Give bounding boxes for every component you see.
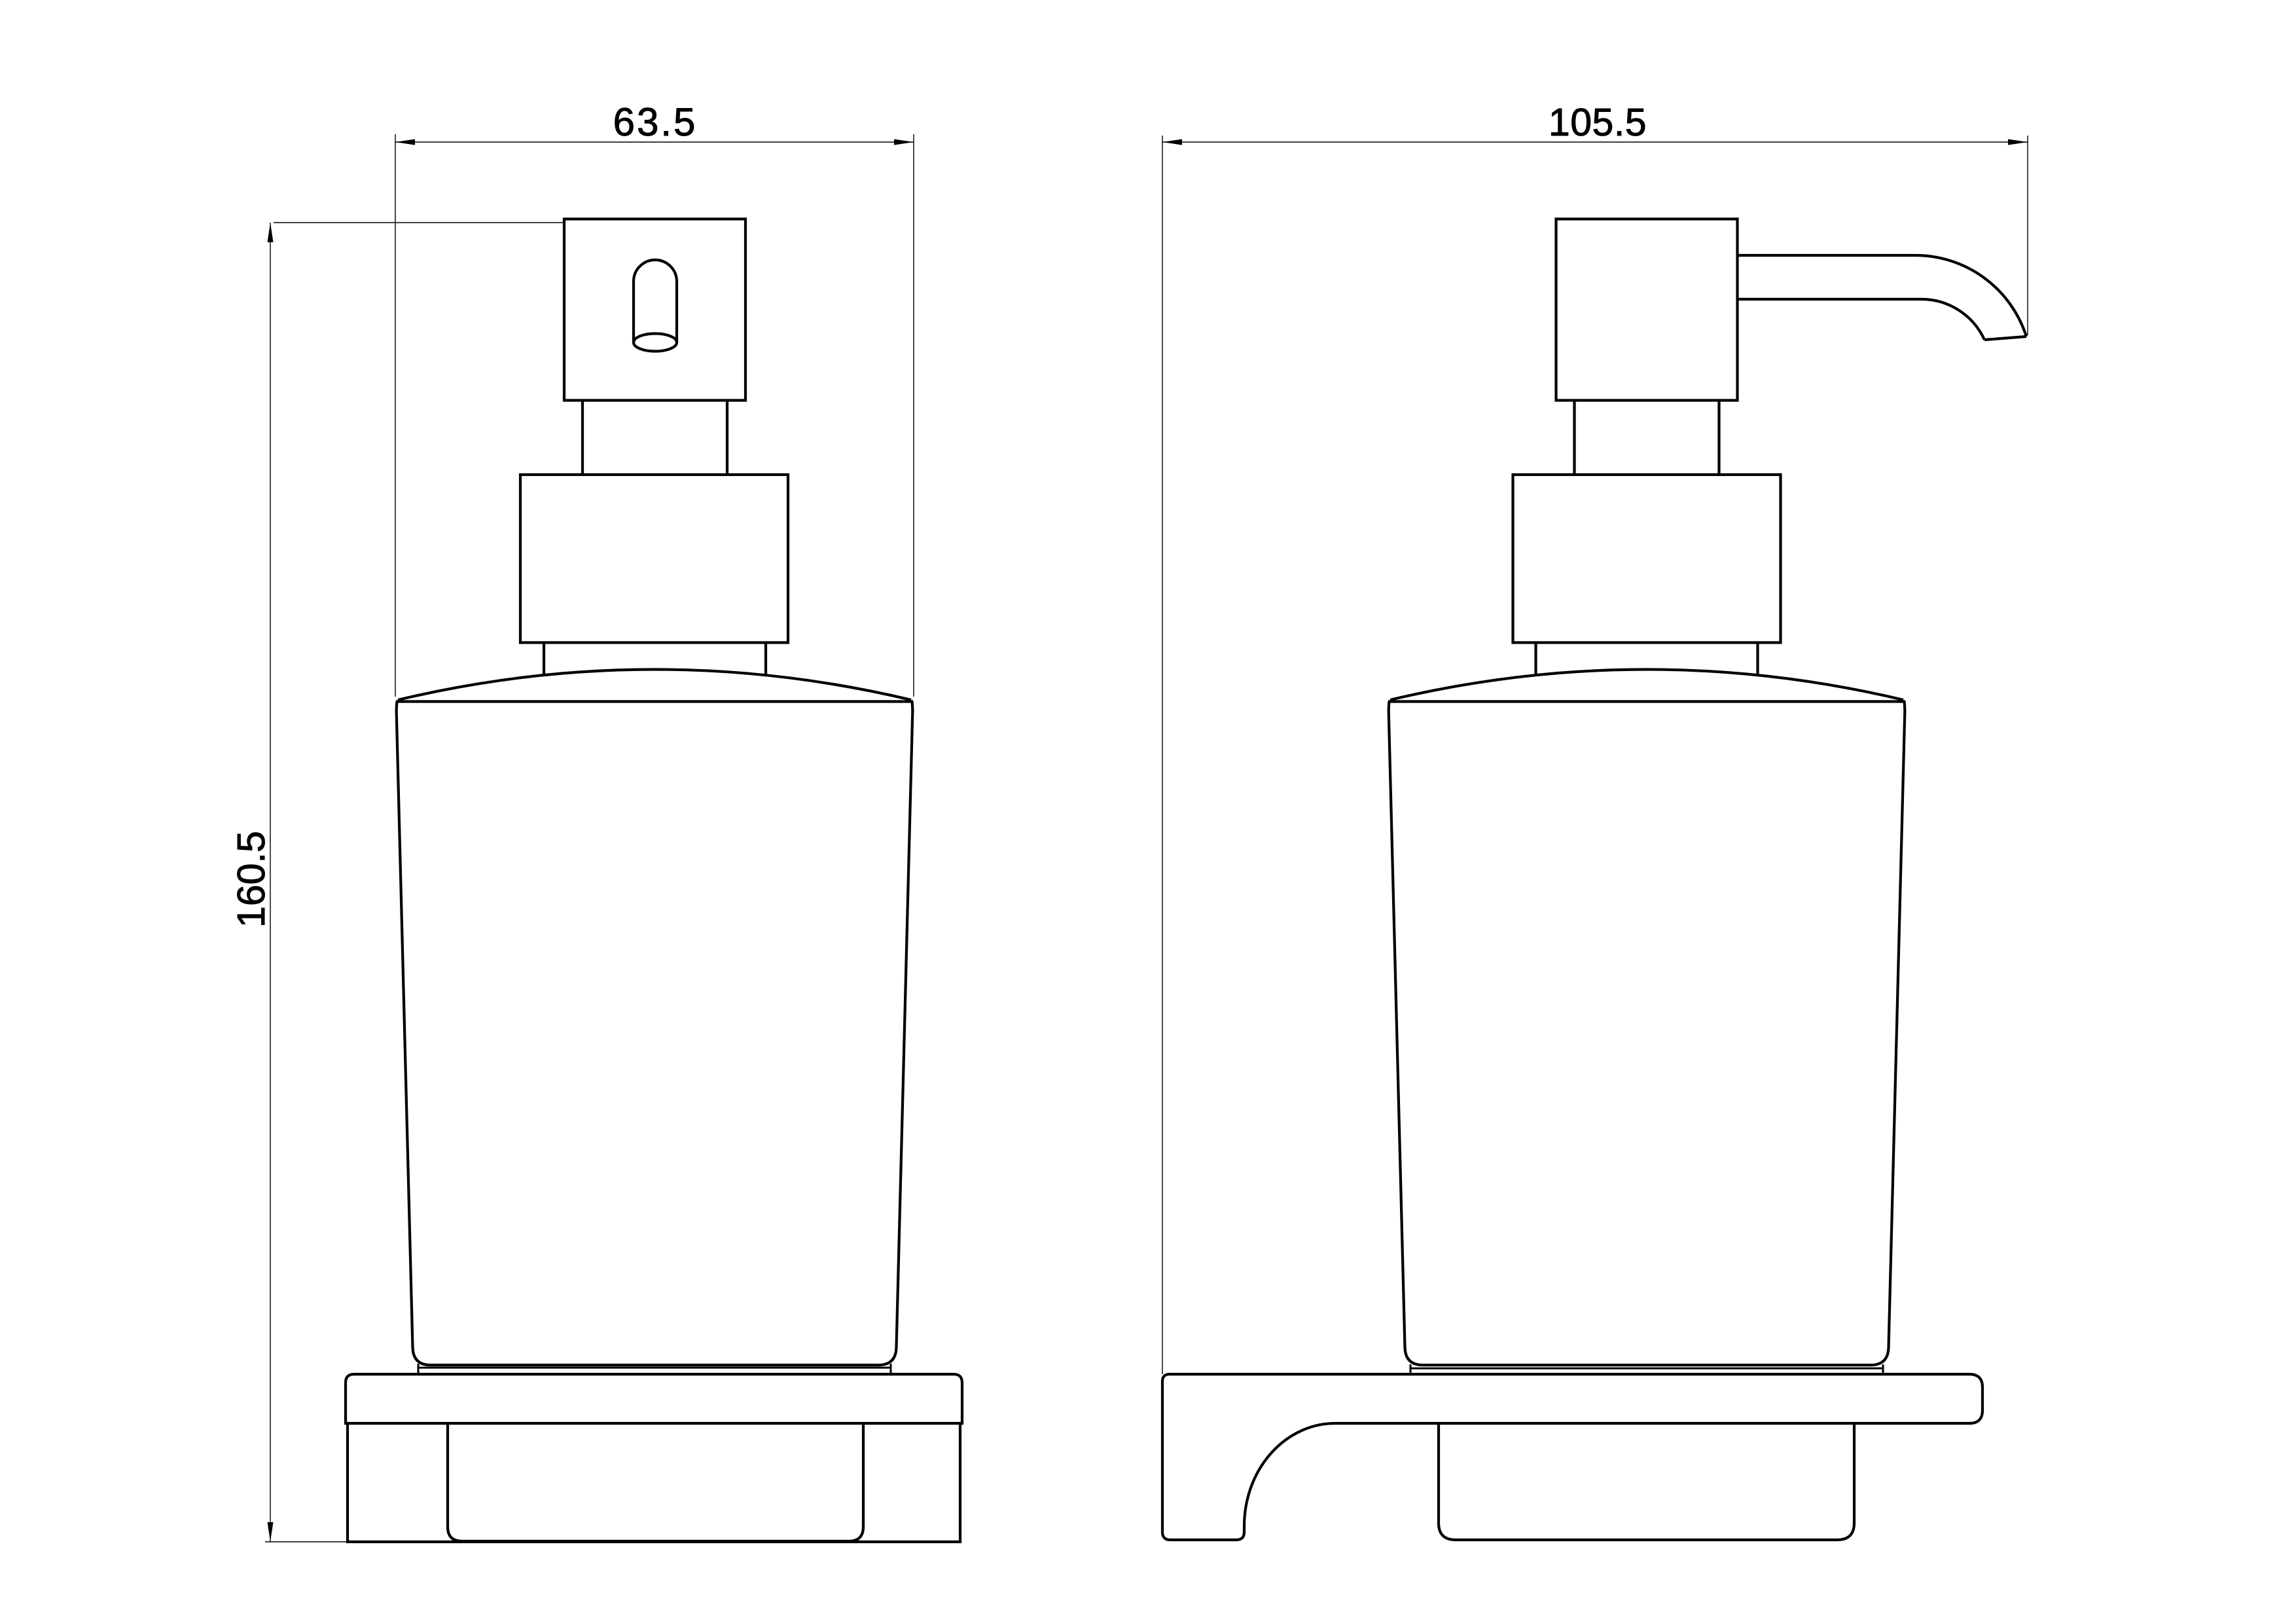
svg-text:105.5: 105.5 <box>1549 101 1647 144</box>
svg-text:160.5: 160.5 <box>230 831 273 928</box>
svg-text:63.5: 63.5 <box>613 100 698 144</box>
